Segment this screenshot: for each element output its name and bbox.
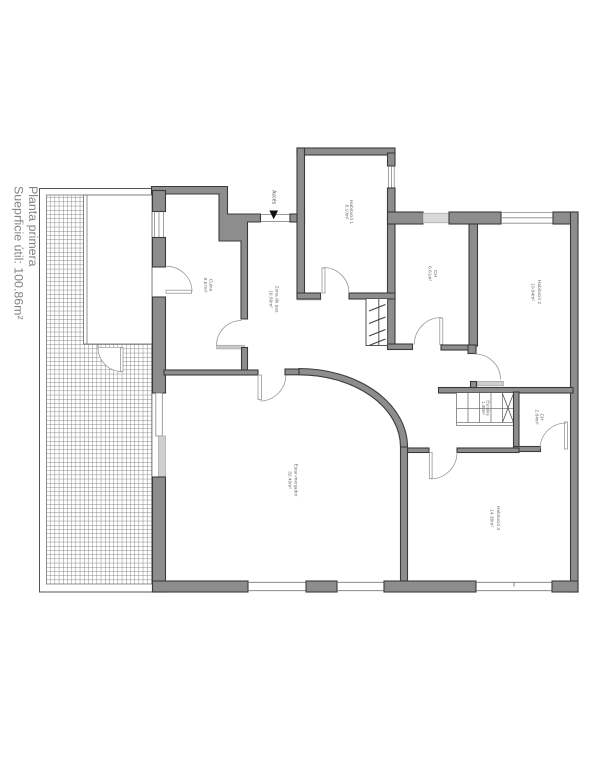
svg-text:CH: CH <box>432 270 438 277</box>
svg-text:Habitació 3: Habitació 3 <box>495 506 501 530</box>
svg-text:Accés: Accés <box>270 190 276 205</box>
svg-text:Estar-menjador: Estar-menjador <box>293 464 299 497</box>
svg-text:14.38m²: 14.38m² <box>489 509 495 527</box>
svg-text:Zona de pas: Zona de pas <box>274 286 280 313</box>
svg-text:Sueprficie útil: 100.86m²: Sueprficie útil: 100.86m² <box>12 186 26 320</box>
svg-text:1.98m²: 1.98m² <box>481 401 486 415</box>
svg-text:Habitació 2: Habitació 2 <box>536 280 542 304</box>
svg-text:10.84m²: 10.84m² <box>530 283 536 301</box>
svg-text:Cuina: Cuina <box>208 279 214 292</box>
svg-text:8.10m²: 8.10m² <box>344 205 350 220</box>
svg-text:6.61m²: 6.61m² <box>427 266 433 281</box>
svg-text:8.67m²: 8.67m² <box>202 278 208 293</box>
svg-text:2.84m²: 2.84m² <box>534 410 540 425</box>
svg-text:32.40m²: 32.40m² <box>287 471 293 489</box>
svg-text:Planta primera: Planta primera <box>26 186 40 267</box>
svg-text:16.56m²: 16.56m² <box>268 290 274 308</box>
